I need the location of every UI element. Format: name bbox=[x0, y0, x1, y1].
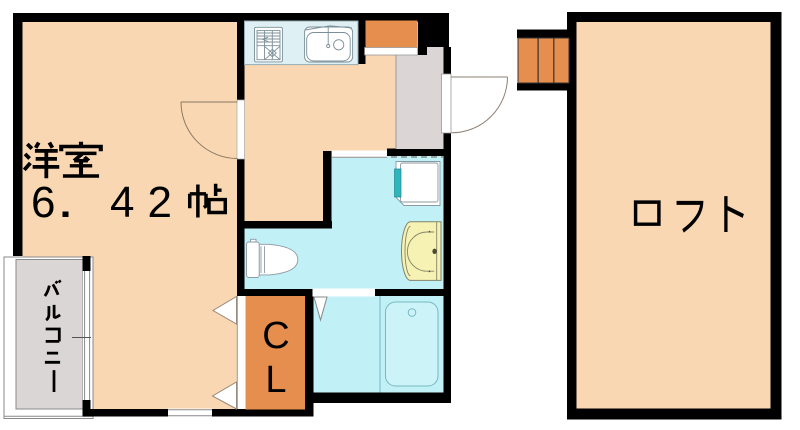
svg-text:2: 2 bbox=[148, 178, 172, 227]
svg-text:L: L bbox=[265, 359, 286, 401]
svg-text:6: 6 bbox=[31, 178, 55, 227]
svg-text:C: C bbox=[262, 315, 289, 357]
svg-text:4: 4 bbox=[110, 178, 134, 227]
